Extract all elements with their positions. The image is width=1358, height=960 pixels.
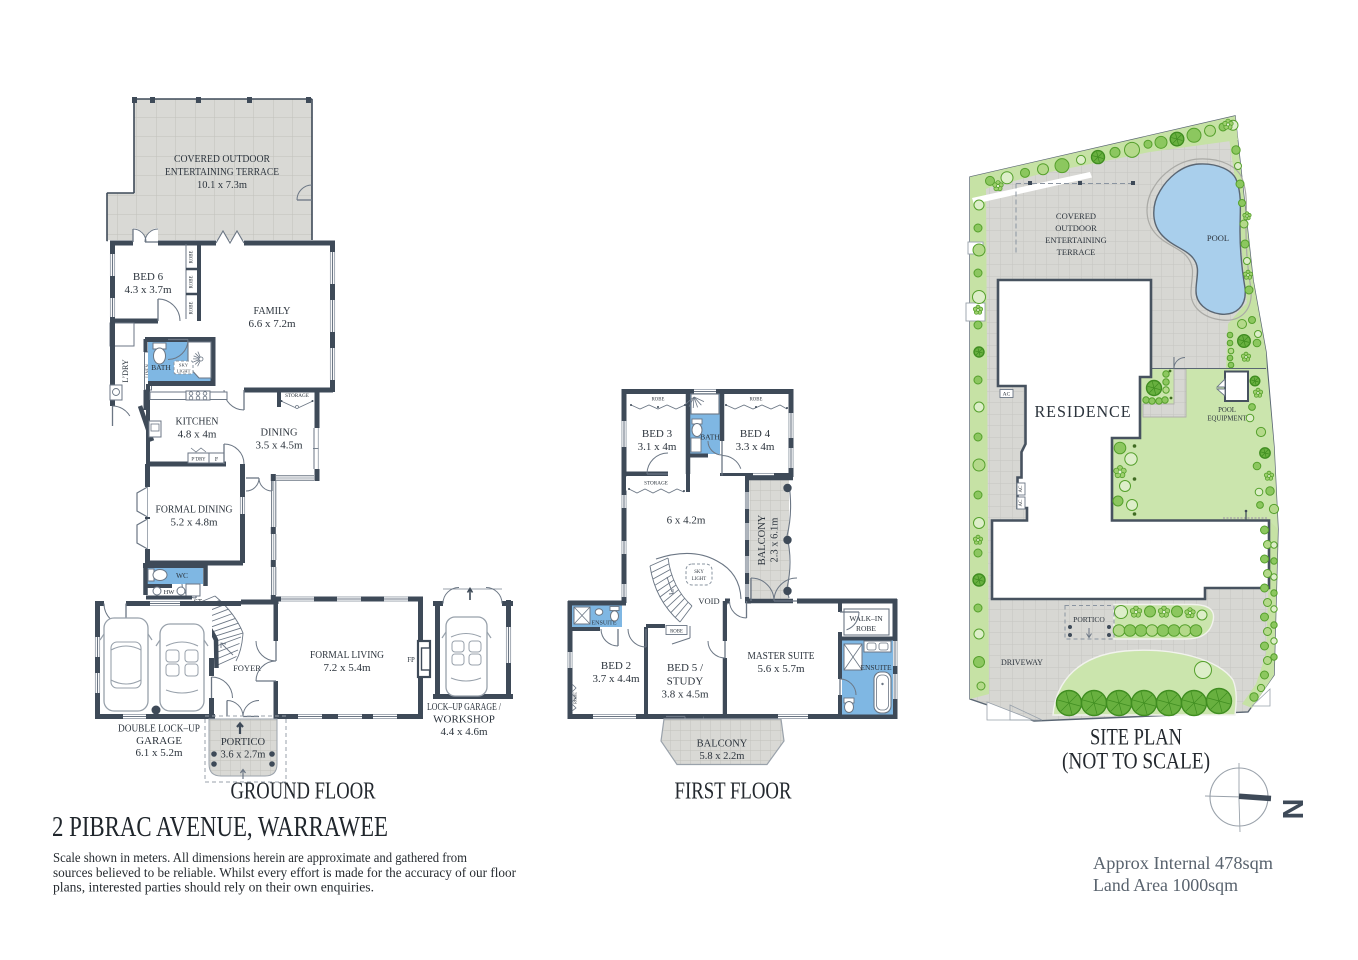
svg-text:5.6 x 5.7m: 5.6 x 5.7m bbox=[757, 663, 805, 675]
svg-text:5.8 x 2.2m: 5.8 x 2.2m bbox=[700, 751, 745, 762]
svg-text:BED 2: BED 2 bbox=[601, 660, 631, 672]
svg-text:Scale shown in meters. All dim: Scale shown in meters. All dimensions he… bbox=[53, 850, 467, 865]
svg-text:BED 4: BED 4 bbox=[740, 428, 771, 440]
svg-text:COVERED: COVERED bbox=[1056, 211, 1096, 221]
svg-text:ENTERTAINING TERRACE: ENTERTAINING TERRACE bbox=[165, 166, 279, 178]
svg-text:TERRACE: TERRACE bbox=[1057, 247, 1096, 257]
svg-text:ENSUITE: ENSUITE bbox=[592, 621, 617, 627]
svg-text:SKY: SKY bbox=[179, 363, 189, 368]
svg-text:FP: FP bbox=[407, 657, 415, 664]
svg-text:DINING: DINING bbox=[261, 427, 298, 439]
svg-text:2 PIBRAC AVENUE, WARRAWEE: 2 PIBRAC AVENUE, WARRAWEE bbox=[52, 811, 388, 843]
svg-text:7.2 x 5.4m: 7.2 x 5.4m bbox=[323, 662, 371, 674]
svg-text:POOL: POOL bbox=[1218, 407, 1236, 414]
svg-text:POOL: POOL bbox=[1207, 233, 1229, 243]
svg-text:AC: AC bbox=[1003, 392, 1011, 398]
svg-text:4.8 x 4m: 4.8 x 4m bbox=[178, 429, 217, 441]
svg-text:ROBE: ROBE bbox=[670, 630, 683, 635]
svg-text:3.6 x 2.7m: 3.6 x 2.7m bbox=[221, 750, 266, 761]
svg-text:KITCHEN: KITCHEN bbox=[176, 416, 219, 428]
svg-text:DRIVEWAY: DRIVEWAY bbox=[1001, 658, 1043, 667]
svg-text:FIRST FLOOR: FIRST FLOOR bbox=[675, 779, 792, 805]
svg-text:PORTICO: PORTICO bbox=[221, 737, 266, 748]
svg-text:AC: AC bbox=[1019, 499, 1024, 507]
svg-text:LIGHT: LIGHT bbox=[177, 369, 191, 374]
svg-text:BED 3: BED 3 bbox=[642, 428, 673, 440]
svg-text:STORAGE: STORAGE bbox=[644, 481, 668, 487]
svg-text:SITE PLAN: SITE PLAN bbox=[1090, 725, 1182, 750]
svg-text:ROBE: ROBE bbox=[856, 624, 876, 633]
svg-text:3.7 x 4.4m: 3.7 x 4.4m bbox=[592, 673, 640, 685]
svg-text:EQUIPMENT: EQUIPMENT bbox=[1207, 416, 1247, 423]
svg-text:BED 5 /: BED 5 / bbox=[667, 662, 704, 674]
svg-text:DOUBLE LOCK–UP: DOUBLE LOCK–UP bbox=[118, 723, 200, 735]
svg-text:2.3 x 6.1m: 2.3 x 6.1m bbox=[770, 518, 781, 563]
svg-text:P’DRY: P’DRY bbox=[191, 458, 206, 463]
svg-text:ROBE: ROBE bbox=[573, 692, 578, 704]
svg-text:AC: AC bbox=[1019, 485, 1024, 493]
svg-text:FORMAL LIVING: FORMAL LIVING bbox=[310, 649, 384, 661]
svg-text:GROUND FLOOR: GROUND FLOOR bbox=[231, 779, 376, 805]
svg-text:ROBE: ROBE bbox=[750, 398, 763, 403]
svg-text:FOYER: FOYER bbox=[233, 663, 261, 673]
svg-text:SKY: SKY bbox=[694, 570, 704, 575]
svg-text:GARAGE: GARAGE bbox=[136, 735, 182, 747]
svg-text:WC: WC bbox=[176, 571, 188, 580]
svg-text:6.1 x 5.2m: 6.1 x 5.2m bbox=[135, 747, 183, 759]
svg-text:4.3 x 3.7m: 4.3 x 3.7m bbox=[124, 284, 172, 296]
svg-text:OUTDOOR: OUTDOOR bbox=[1055, 223, 1097, 233]
svg-text:sources believed to be reliab: sources believed to be reliable. Whilst … bbox=[53, 865, 516, 880]
svg-text:plans, interested parties shou: plans, interested parties should rely on… bbox=[53, 880, 374, 895]
svg-text:PORTICO: PORTICO bbox=[1073, 615, 1105, 624]
svg-text:BALCONY: BALCONY bbox=[757, 514, 768, 565]
svg-text:5.2 x 4.8m: 5.2 x 4.8m bbox=[170, 517, 218, 529]
svg-text:ENSUITE: ENSUITE bbox=[860, 663, 892, 672]
svg-text:3.3 x 4m: 3.3 x 4m bbox=[736, 441, 775, 453]
svg-text:3.8 x 4.5m: 3.8 x 4.5m bbox=[661, 689, 709, 701]
svg-text:COVERED OUTDOOR: COVERED OUTDOOR bbox=[174, 153, 271, 165]
svg-text:STORAGE: STORAGE bbox=[285, 393, 309, 399]
svg-text:STUDY: STUDY bbox=[667, 676, 704, 688]
svg-text:WORKSHOP: WORKSHOP bbox=[433, 714, 495, 726]
svg-text:10.1 x 7.3m: 10.1 x 7.3m bbox=[197, 179, 247, 191]
svg-text:6 x 4.2m: 6 x 4.2m bbox=[667, 515, 706, 527]
svg-text:VOID: VOID bbox=[698, 596, 719, 606]
svg-text:ROBE: ROBE bbox=[190, 251, 195, 264]
svg-text:WALK–IN: WALK–IN bbox=[849, 614, 883, 623]
svg-text:ENTERTAINING: ENTERTAINING bbox=[1045, 235, 1107, 245]
svg-text:LIGHT: LIGHT bbox=[692, 577, 706, 582]
svg-text:RESIDENCE: RESIDENCE bbox=[1035, 402, 1132, 421]
svg-text:3.5 x 4.5m: 3.5 x 4.5m bbox=[255, 440, 303, 452]
svg-text:ROBE: ROBE bbox=[652, 398, 665, 403]
svg-text:N: N bbox=[1276, 799, 1308, 820]
svg-text:Land Area 1000sqm: Land Area 1000sqm bbox=[1093, 875, 1238, 895]
svg-text:BATH: BATH bbox=[700, 433, 720, 442]
svg-text:6.6 x 7.2m: 6.6 x 7.2m bbox=[248, 318, 296, 330]
svg-text:FAMILY: FAMILY bbox=[254, 305, 291, 317]
svg-text:BALCONY: BALCONY bbox=[697, 739, 748, 750]
svg-text:BED 6: BED 6 bbox=[133, 271, 164, 283]
svg-text:L’DRY: L’DRY bbox=[121, 359, 130, 382]
svg-text:LOCK–UP GARAGE /: LOCK–UP GARAGE / bbox=[427, 701, 502, 713]
svg-text:HW: HW bbox=[164, 589, 176, 596]
svg-text:ROBE: ROBE bbox=[190, 276, 195, 289]
svg-text:ROBE: ROBE bbox=[190, 302, 195, 315]
svg-text:3.1 x 4m: 3.1 x 4m bbox=[638, 441, 677, 453]
svg-text:MASTER SUITE: MASTER SUITE bbox=[748, 650, 815, 662]
svg-text:FORMAL DINING: FORMAL DINING bbox=[156, 504, 233, 516]
svg-text:BATH: BATH bbox=[151, 363, 171, 372]
svg-text:(NOT TO SCALE): (NOT TO SCALE) bbox=[1062, 749, 1210, 774]
svg-text:4.4 x 4.6m: 4.4 x 4.6m bbox=[440, 726, 488, 738]
svg-text:Approx Internal 478sqm: Approx Internal 478sqm bbox=[1093, 853, 1273, 873]
